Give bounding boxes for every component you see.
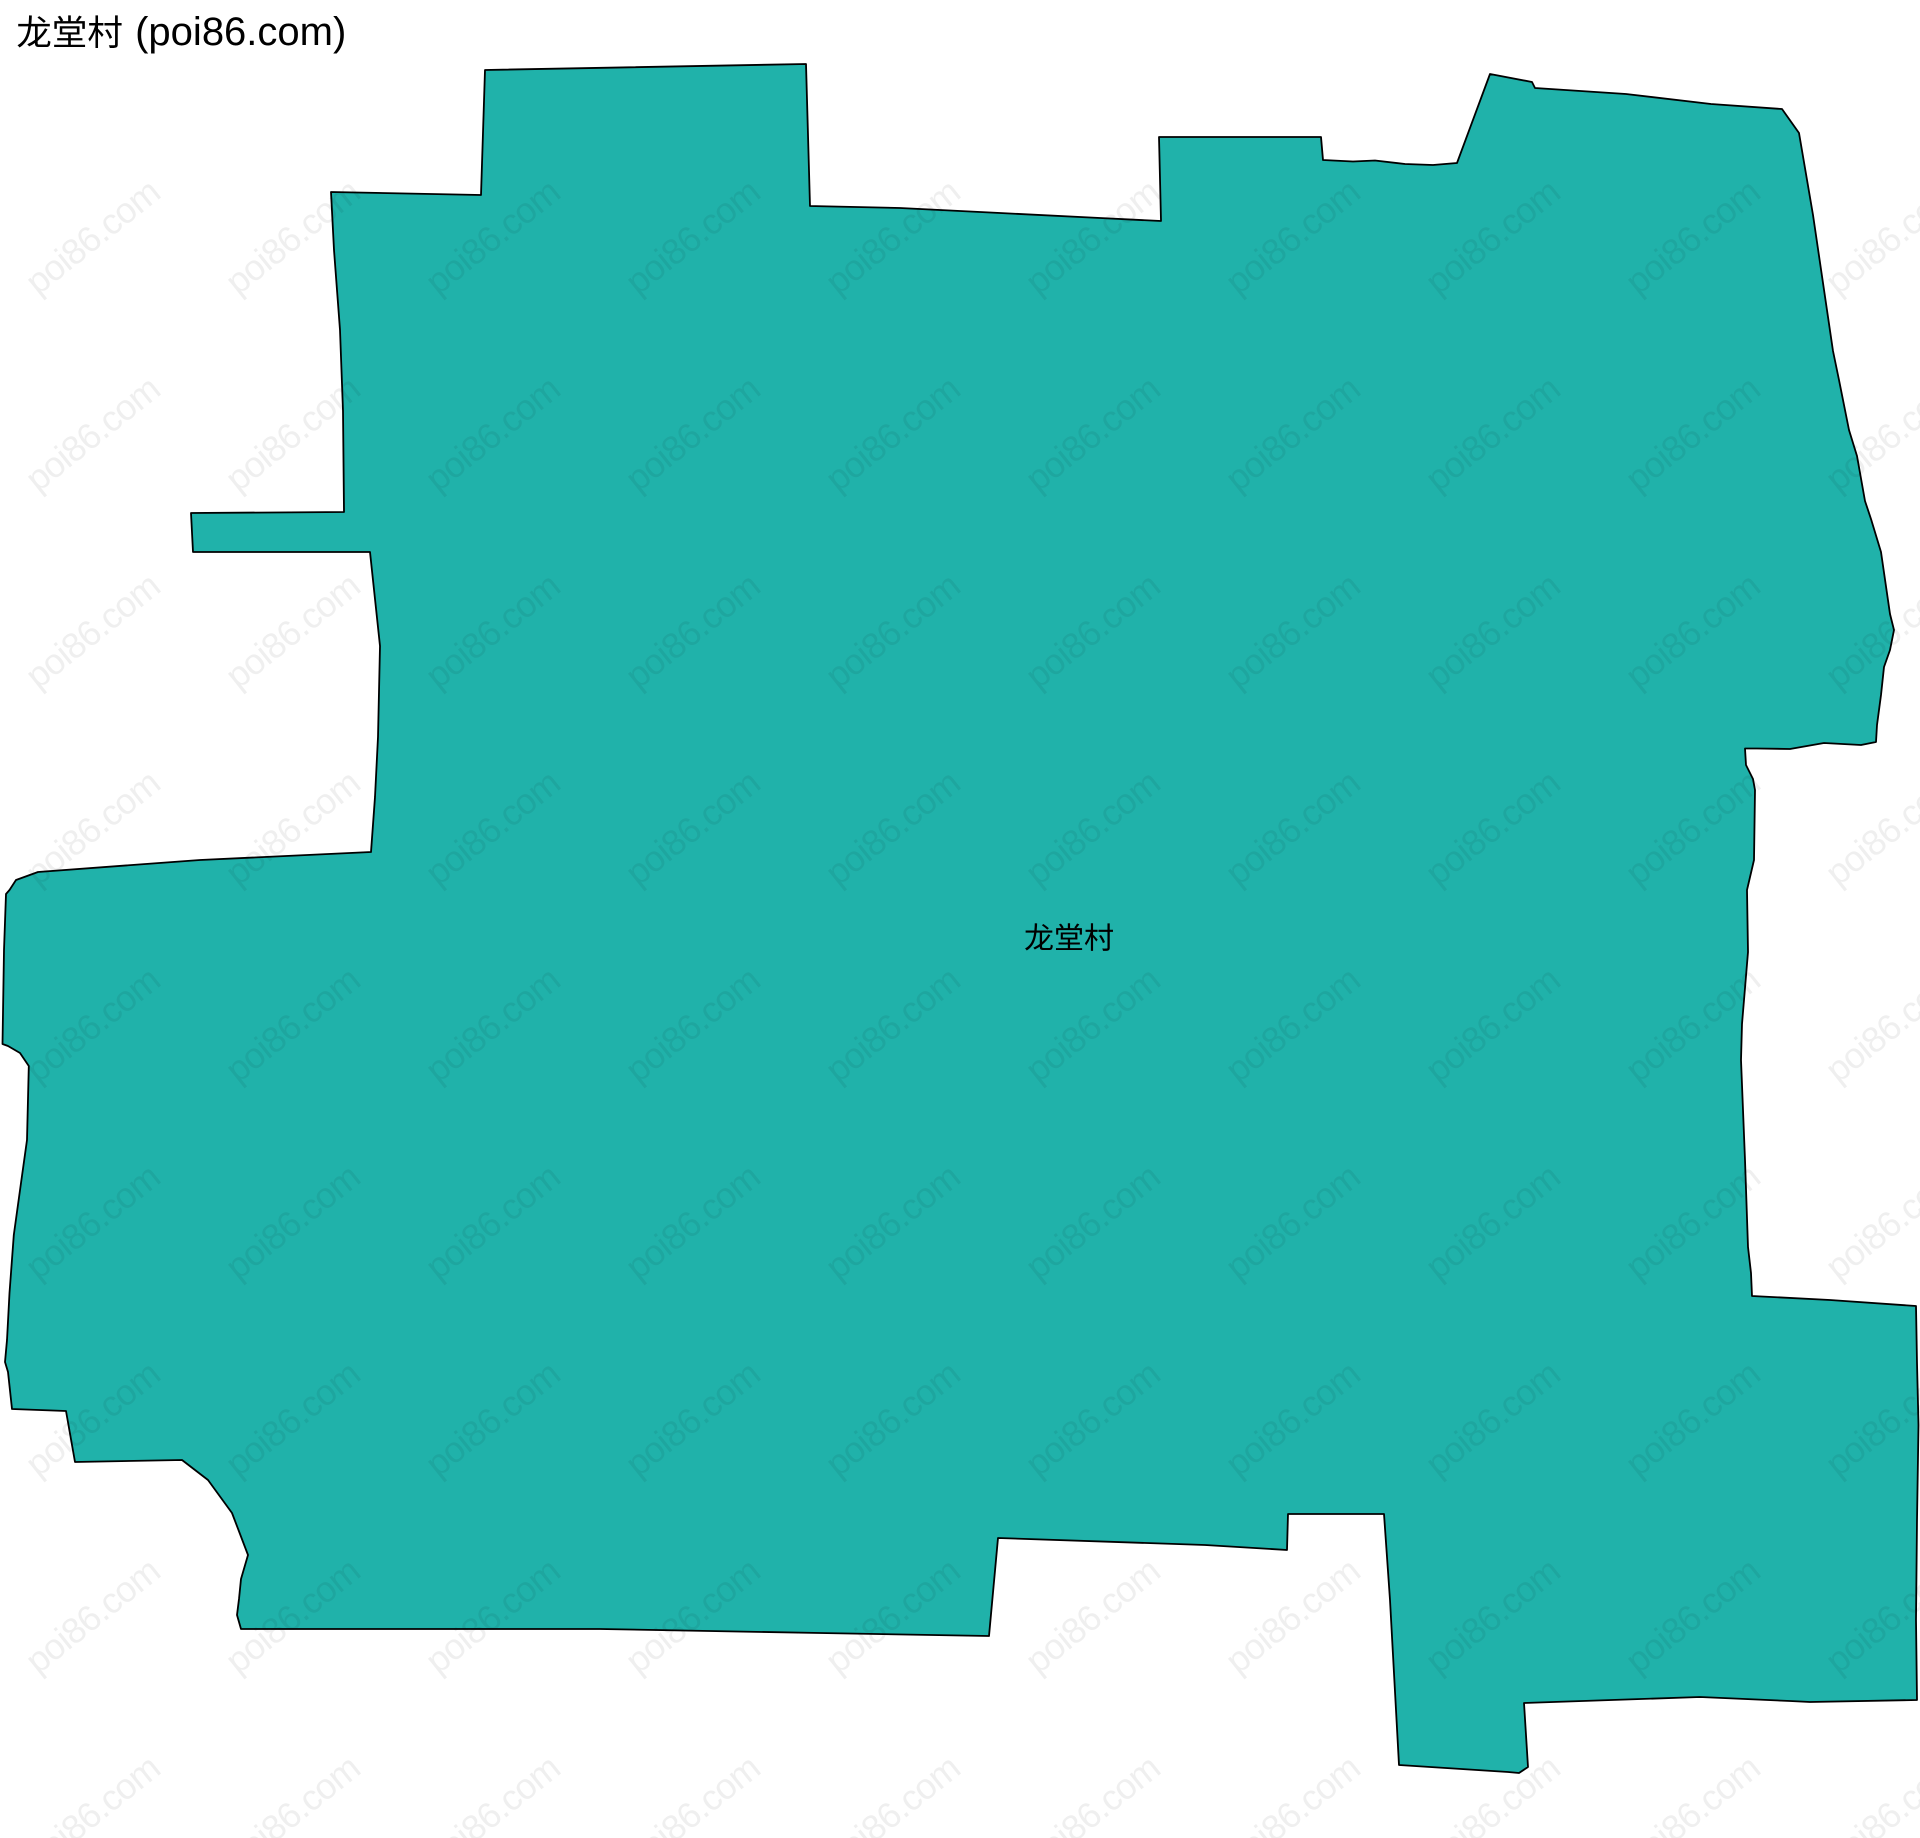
- svg-text:(poi86.com): (poi86.com): [124, 10, 346, 54]
